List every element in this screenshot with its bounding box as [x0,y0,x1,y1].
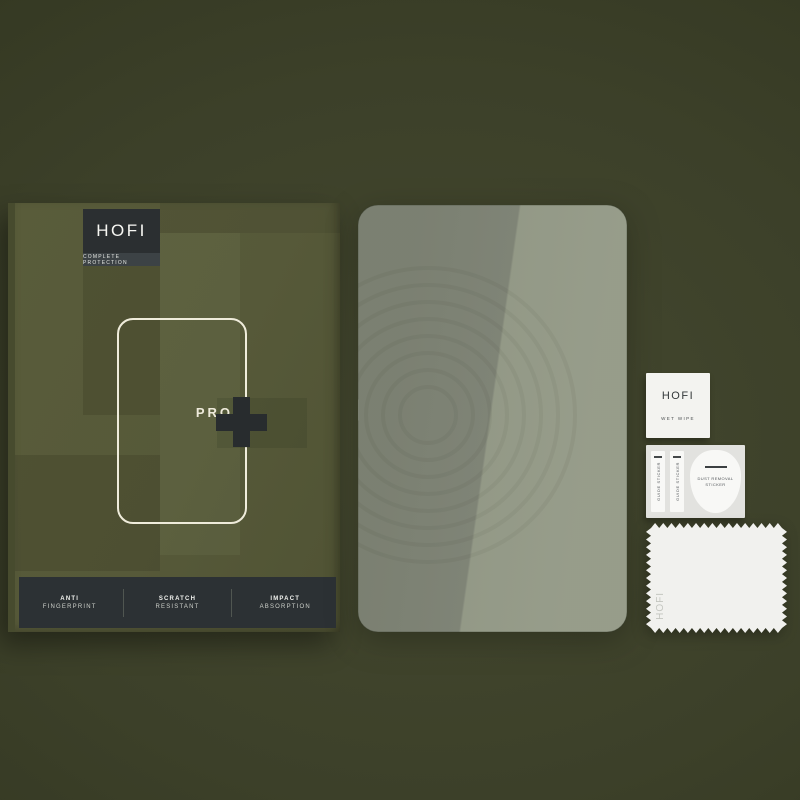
brand-tagline: COMPLETE PROTECTION [83,254,160,266]
feature-line2: ABSORPTION [260,604,311,610]
glass-screen-protector [358,205,627,632]
cloth-shape [646,523,787,633]
feature-impact-absorption: IMPACT ABSORPTION [237,596,333,610]
box-pattern-block [160,203,340,233]
guide-sticker: GUIDE STICKER [651,451,665,512]
feature-line2: RESISTANT [155,604,199,610]
sticker-card: GUIDE STICKER GUIDE STICKER DUST REMOVAL… [646,445,745,518]
guide-sticker-bar [673,456,681,458]
product-photo-scene: HOFI COMPLETE PROTECTION PRO ANTI FINGER… [0,0,800,800]
feature-line1: IMPACT [270,596,300,602]
cloth-brand: HOFI [655,592,666,620]
guide-sticker-label: GUIDE STICKER [656,462,661,501]
feature-strip: ANTI FINGERPRINT SCRATCH RESISTANT IMPAC… [19,577,336,628]
dust-removal-label: DUST REMOVAL STICKER [698,476,734,488]
guide-sticker: GUIDE STICKER [670,451,684,512]
feature-divider [123,589,124,617]
guide-sticker-bar [654,456,662,458]
brand-logo-text: HOFI [96,221,147,241]
plus-icon-horizontal-bar [216,414,267,431]
wet-wipe-label: WET WIPE [661,416,695,421]
brand-badge: HOFI COMPLETE PROTECTION [83,209,160,266]
feature-divider [231,589,232,617]
brand-badge-sub: COMPLETE PROTECTION [83,253,160,266]
product-box: HOFI COMPLETE PROTECTION PRO ANTI FINGER… [8,203,340,632]
feature-scratch-resistant: SCRATCH RESISTANT [129,596,225,610]
feature-line1: SCRATCH [159,596,196,602]
feature-anti-fingerprint: ANTI FINGERPRINT [22,596,118,610]
brand-badge-main: HOFI [83,209,160,253]
feature-line2: FINGERPRINT [43,604,97,610]
dust-removal-sticker: DUST REMOVAL STICKER [690,450,741,513]
microfiber-cloth: HOFI [646,523,787,633]
guide-sticker-label: GUIDE STICKER [675,462,680,501]
feature-line1: ANTI [60,596,79,602]
wet-wipe-packet: HOFI WET WIPE [646,373,710,438]
dust-removal-bar [705,466,727,468]
plus-icon [216,397,306,447]
wet-wipe-brand: HOFI [662,390,694,402]
